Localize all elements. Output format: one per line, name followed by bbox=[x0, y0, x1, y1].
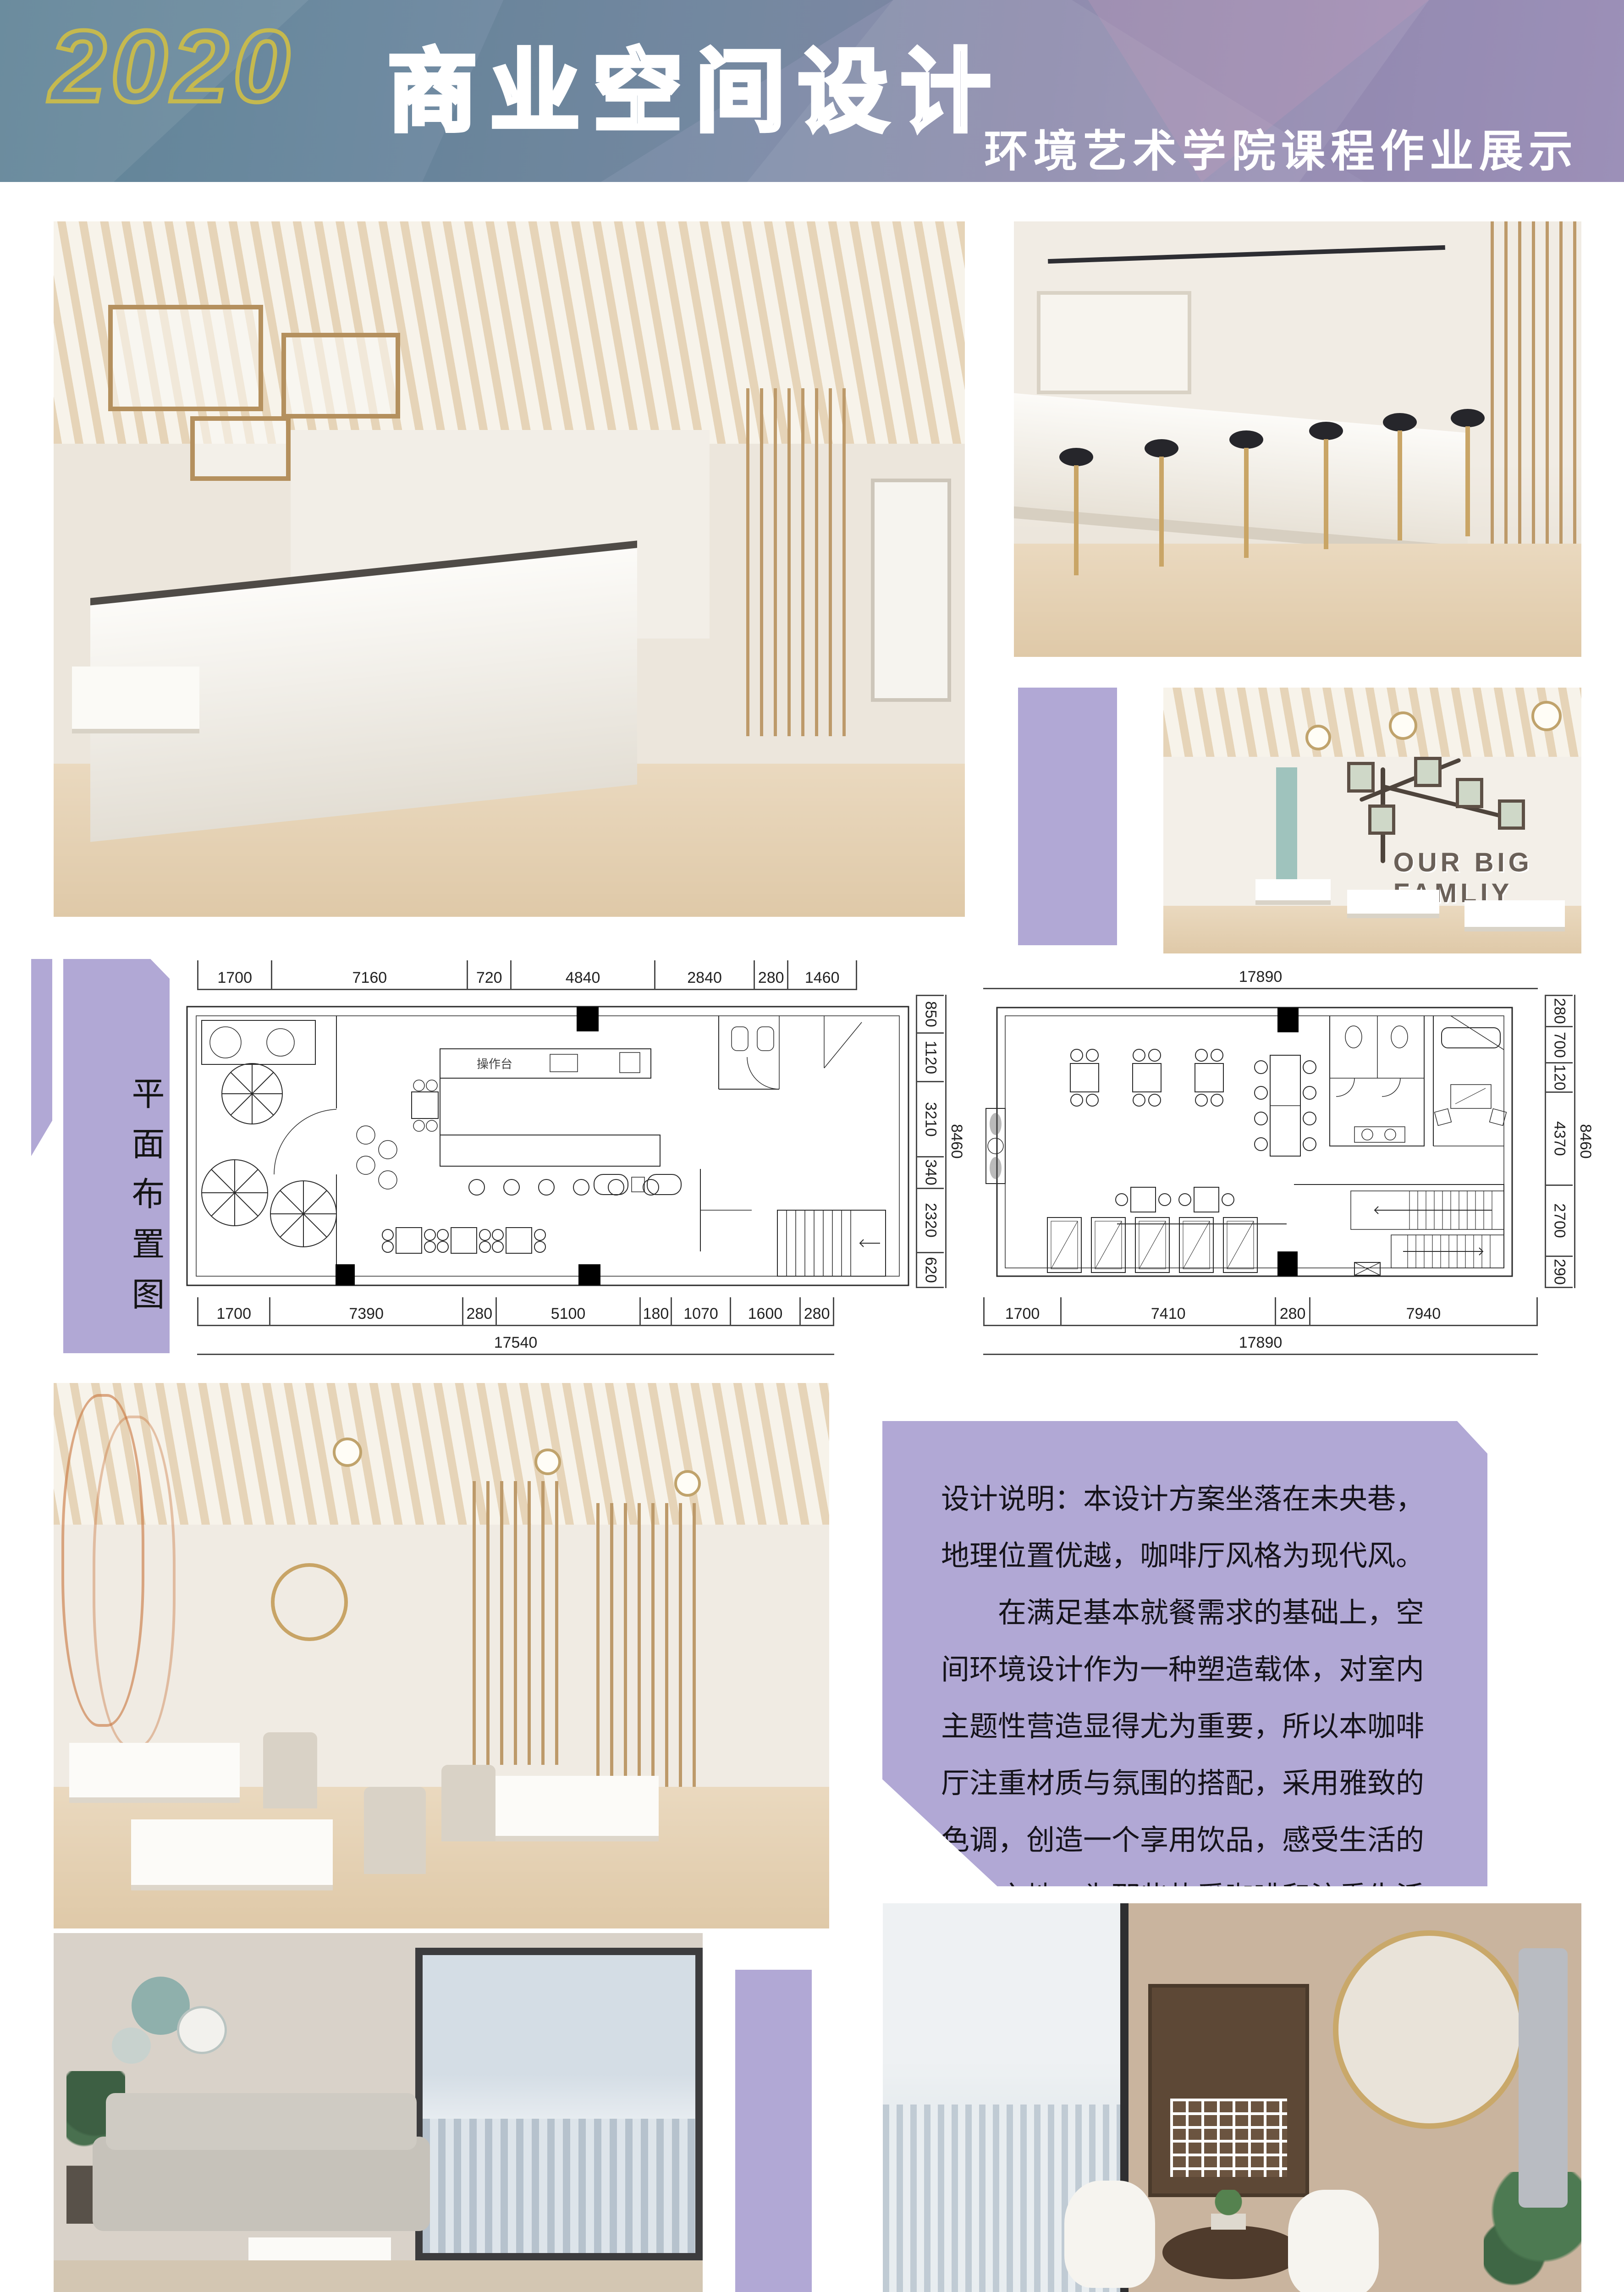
dimension-segment: 620 bbox=[917, 1252, 944, 1288]
gold-screen-partition bbox=[746, 388, 847, 736]
plan2-right-total: 8460 bbox=[1574, 995, 1595, 1288]
dimension-segment: 180 bbox=[639, 1297, 671, 1325]
dimension-segment: 280 bbox=[754, 960, 787, 989]
pendant-lamp bbox=[534, 1449, 561, 1475]
wall-plate-decor bbox=[177, 2006, 227, 2054]
dining-chair bbox=[441, 1765, 495, 1841]
dimension-segment: 280 bbox=[462, 1297, 495, 1325]
window-shelf bbox=[1037, 291, 1192, 394]
plan1-right-total: 8460 bbox=[945, 995, 966, 1288]
dimension-segment: 1120 bbox=[917, 1032, 944, 1081]
plan2-top-total: 17890 bbox=[983, 962, 1538, 989]
dining-table bbox=[69, 1743, 240, 1803]
dining-table bbox=[1347, 890, 1439, 918]
page-subtitle: 环境艺术学院课程作业展示 bbox=[984, 116, 1578, 179]
dimension-segment: 1070 bbox=[671, 1297, 729, 1325]
page-title: 商业空间设计 bbox=[387, 19, 1003, 149]
plan1-total-height: 8460 bbox=[947, 1124, 965, 1159]
pendant-lamp bbox=[333, 1438, 362, 1467]
hanging-shelf-box bbox=[108, 305, 263, 411]
accent-strip bbox=[1018, 688, 1117, 945]
dimension-segment: 850 bbox=[917, 995, 944, 1032]
photo-frame bbox=[1414, 757, 1442, 787]
bar-stool bbox=[1451, 409, 1485, 546]
floor-plan-2-drawing bbox=[979, 995, 1533, 1288]
dimension-segment: 120 bbox=[1546, 1062, 1573, 1091]
dining-chair bbox=[364, 1787, 426, 1874]
plan1-top-dimensions: 17007160720484028402801460 bbox=[197, 960, 857, 990]
round-mirror bbox=[1333, 1930, 1525, 2129]
gold-screen-partition bbox=[473, 1481, 566, 1765]
bar-stool bbox=[1059, 448, 1093, 585]
photo-frame bbox=[1368, 804, 1396, 835]
plan1-bottom-dimensions: 17007390280510018010701600280 bbox=[197, 1297, 834, 1326]
dimension-segment: 280 bbox=[799, 1297, 834, 1325]
white-chair bbox=[1064, 2181, 1155, 2288]
table-plant bbox=[1211, 2190, 1246, 2230]
photo-frame bbox=[1498, 799, 1525, 830]
dimension-segment: 2700 bbox=[1546, 1185, 1573, 1256]
plan1-counter-label: 操作台 bbox=[477, 1057, 512, 1071]
white-chair bbox=[1288, 2190, 1379, 2292]
plan2-total-height: 8460 bbox=[1576, 1124, 1594, 1159]
dimension-segment: 7410 bbox=[1060, 1297, 1275, 1325]
bar-stool bbox=[1383, 413, 1417, 551]
dimension-segment: 2840 bbox=[654, 960, 754, 989]
dimension-segment: 7160 bbox=[271, 960, 467, 989]
pendant-lamp bbox=[674, 1470, 701, 1497]
dining-chair bbox=[263, 1732, 317, 1809]
plan2-total-width: 17890 bbox=[1239, 1334, 1283, 1354]
poster: 2020 商业空间设计 环境艺术学院课程作业展示 bbox=[0, 0, 1624, 2292]
wine-cabinet bbox=[1148, 1984, 1309, 2197]
plan1-bottom-total: 17540 bbox=[197, 1328, 834, 1355]
hanging-shelf-box bbox=[190, 416, 291, 481]
round-table bbox=[1162, 2226, 1302, 2279]
description-paragraph: 设计说明：本设计方案坐落在未央巷，地理位置优越，咖啡厅风格为现代风。 bbox=[941, 1471, 1445, 1584]
dimension-segment: 720 bbox=[467, 960, 510, 989]
dining-table bbox=[131, 1819, 333, 1890]
render-bar-counter-overview bbox=[54, 221, 965, 917]
air-conditioner bbox=[1519, 1948, 1568, 2208]
accent-strip bbox=[735, 1970, 812, 2292]
render-family-wall-dining: OUR BIG FAMLIY bbox=[1163, 688, 1581, 953]
floor-plan-level2: 17890 bbox=[979, 960, 1620, 1368]
glass-door bbox=[871, 479, 951, 701]
photo-frame bbox=[1456, 778, 1483, 808]
plan2-bottom-dimensions: 170074102807940 bbox=[983, 1297, 1538, 1326]
gold-screen-partition bbox=[596, 1503, 705, 1798]
dimension-segment: 4840 bbox=[510, 960, 654, 989]
dimension-segment: 1700 bbox=[983, 1297, 1060, 1325]
plan1-right-dimensions: 850112032103402320620 bbox=[916, 995, 944, 1288]
plan1-total-width: 17540 bbox=[494, 1334, 538, 1354]
dining-table bbox=[488, 1776, 659, 1841]
bar-stool bbox=[1229, 430, 1263, 568]
dimension-segment: 280 bbox=[1275, 1297, 1309, 1325]
dimension-segment: 3210 bbox=[917, 1081, 944, 1156]
render-lounge-sofa bbox=[54, 1933, 703, 2292]
dining-table bbox=[72, 667, 199, 734]
bar-stool bbox=[1309, 422, 1343, 559]
dimension-segment: 2320 bbox=[917, 1188, 944, 1252]
section-label-panel: 平面布置图 bbox=[63, 959, 170, 1353]
branch-ring-decor bbox=[271, 1563, 348, 1642]
floor-plan-1-drawing: 操作台 bbox=[183, 995, 912, 1288]
dimension-segment: 1700 bbox=[197, 960, 271, 989]
pendant-lamp bbox=[1531, 701, 1562, 731]
dimension-segment: 4370 bbox=[1546, 1091, 1573, 1185]
wood-floor bbox=[54, 2260, 703, 2292]
dimension-segment: 1700 bbox=[197, 1297, 269, 1325]
dimension-segment: 280 bbox=[1546, 995, 1573, 1026]
city-view-window bbox=[415, 1948, 703, 2260]
wall-wave-decor bbox=[93, 1416, 176, 1748]
dimension-segment: 7390 bbox=[269, 1297, 462, 1325]
gold-screen-partition bbox=[1491, 221, 1581, 561]
header-banner: 2020 商业空间设计 环境艺术学院课程作业展示 bbox=[0, 0, 1624, 182]
plan2-right-dimensions: 28070012043702700290 bbox=[1545, 995, 1573, 1288]
grey-sofa bbox=[93, 2137, 430, 2231]
photo-frame bbox=[1347, 762, 1375, 792]
curtain bbox=[1276, 767, 1297, 895]
design-description-panel: 设计说明：本设计方案坐落在未央巷，地理位置优越，咖啡厅风格为现代风。 在满足基本… bbox=[882, 1421, 1487, 1886]
dining-table bbox=[1255, 879, 1331, 905]
dimension-segment: 290 bbox=[1546, 1256, 1573, 1288]
dining-table bbox=[1464, 900, 1565, 931]
dimension-segment: 1460 bbox=[787, 960, 857, 989]
dimension-segment: 5100 bbox=[495, 1297, 640, 1325]
dimension-segment: 340 bbox=[917, 1156, 944, 1188]
city-skyline bbox=[423, 2119, 695, 2253]
floor-plan-level1: 17007160720484028402801460 bbox=[183, 960, 965, 1368]
plan2-bottom-total: 17890 bbox=[983, 1328, 1538, 1355]
plan2-total-width-top: 17890 bbox=[1239, 968, 1283, 988]
dimension-segment: 1600 bbox=[730, 1297, 800, 1325]
hanging-shelf-box bbox=[281, 333, 400, 419]
dimension-segment: 7940 bbox=[1309, 1297, 1538, 1325]
wood-floor bbox=[1014, 544, 1581, 657]
pendant-lamp bbox=[1305, 725, 1331, 750]
render-balcony-seating bbox=[883, 1903, 1581, 2292]
section-label: 平面布置图 bbox=[63, 1074, 170, 1330]
ceiling-slats bbox=[1163, 688, 1581, 757]
accent-strip bbox=[31, 959, 52, 1156]
bar-stool bbox=[1145, 439, 1178, 577]
render-bar-stools-counter bbox=[1014, 221, 1581, 657]
dimension-segment: 700 bbox=[1546, 1026, 1573, 1063]
header-year: 2020 bbox=[50, 8, 294, 125]
render-dining-hall bbox=[54, 1383, 829, 1928]
